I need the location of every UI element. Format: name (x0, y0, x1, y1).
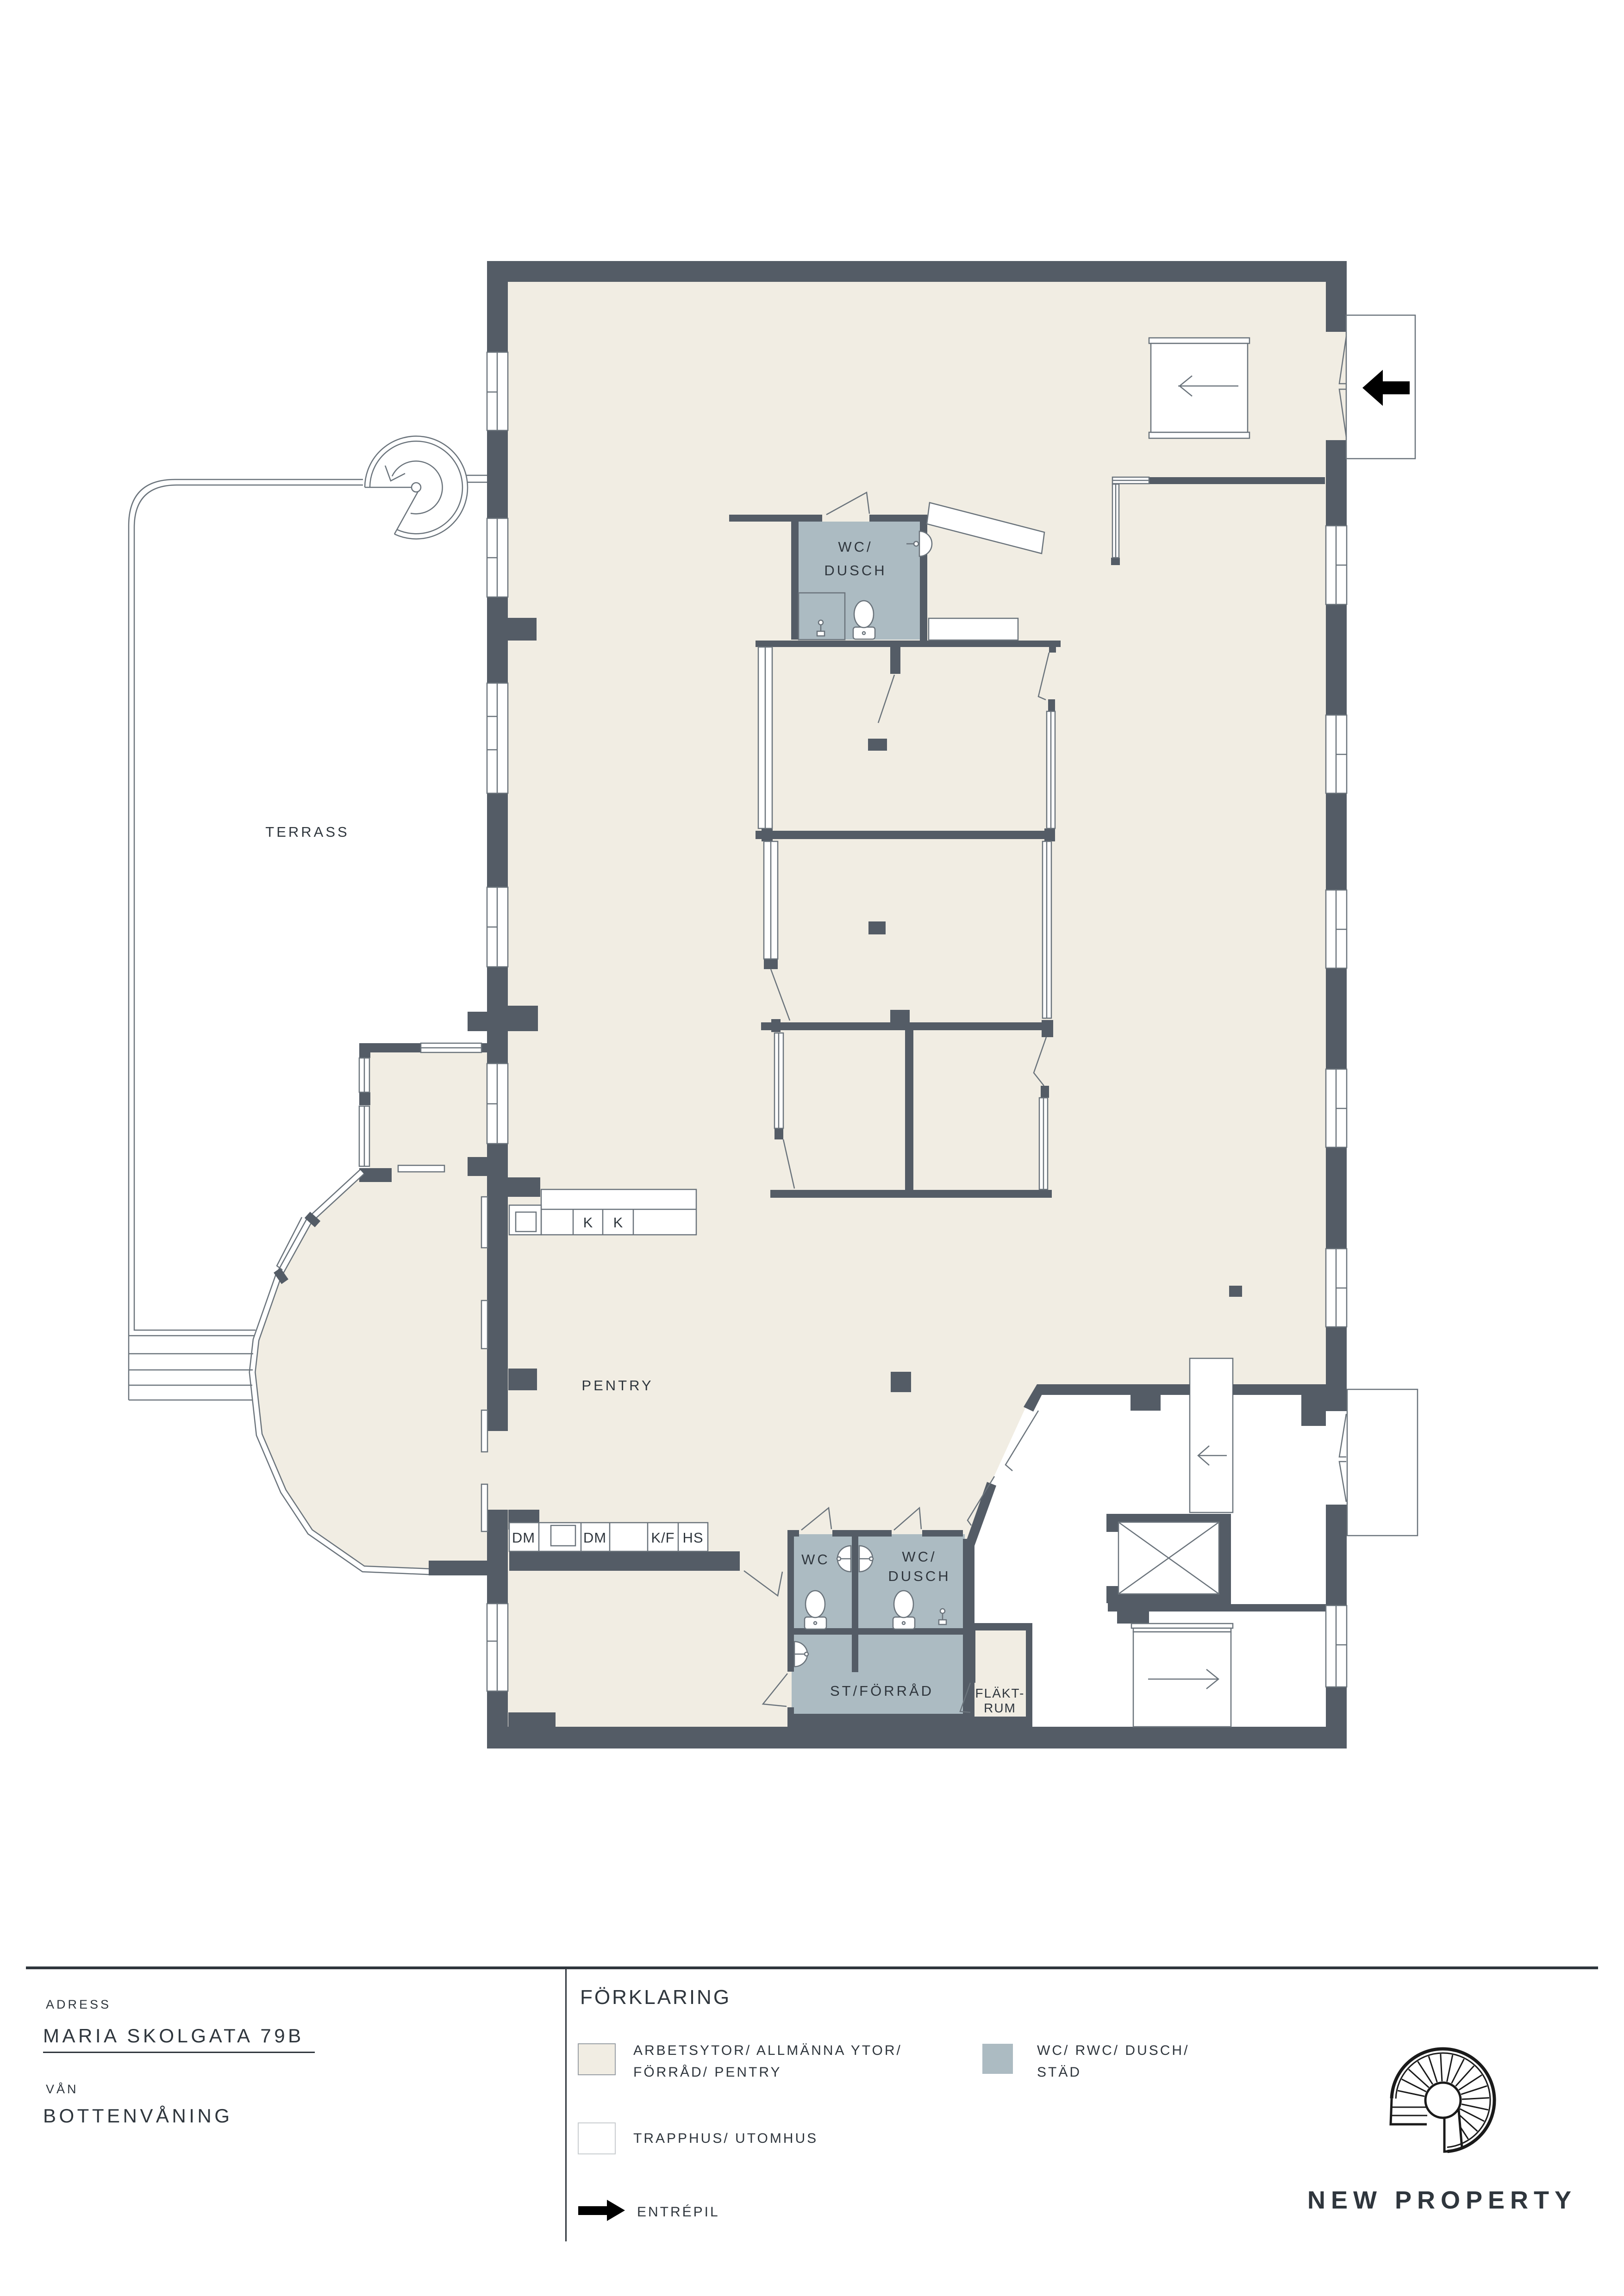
svg-text:DM: DM (583, 1530, 606, 1546)
svg-text:FÖRRÅD/ PENTRY: FÖRRÅD/ PENTRY (633, 2065, 781, 2080)
svg-text:STÄD: STÄD (1037, 2065, 1081, 2080)
svg-text:K: K (613, 1214, 623, 1231)
svg-text:FÖRKLARING: FÖRKLARING (580, 1986, 731, 2009)
svg-text:DUSCH: DUSCH (888, 1568, 950, 1584)
svg-text:DUSCH: DUSCH (824, 562, 887, 579)
svg-text:ADRESS: ADRESS (46, 1997, 111, 2011)
svg-text:DM: DM (512, 1530, 535, 1546)
svg-text:FLÄKT-: FLÄKT- (975, 1686, 1025, 1700)
svg-text:RUM: RUM (984, 1701, 1016, 1715)
svg-text:VÅN: VÅN (46, 2082, 79, 2096)
svg-text:WC/ RWC/ DUSCH/: WC/ RWC/ DUSCH/ (1037, 2043, 1189, 2058)
svg-text:K: K (583, 1214, 593, 1231)
svg-text:WC/: WC/ (902, 1549, 937, 1565)
svg-text:NEW PROPERTY: NEW PROPERTY (1307, 2186, 1577, 2214)
svg-text:TERRASS: TERRASS (265, 824, 349, 840)
svg-text:PENTRY: PENTRY (581, 1377, 653, 1394)
svg-text:HS: HS (682, 1530, 703, 1546)
svg-text:MARIA SKOLGATA 79B: MARIA SKOLGATA 79B (43, 2025, 304, 2047)
svg-text:K/F: K/F (651, 1530, 675, 1546)
svg-text:TRAPPHUS/ UTOMHUS: TRAPPHUS/ UTOMHUS (633, 2131, 818, 2146)
svg-text:ENTRÉPIL: ENTRÉPIL (637, 2204, 720, 2220)
svg-text:BOTTENVÅNING: BOTTENVÅNING (43, 2105, 232, 2127)
svg-text:WC: WC (801, 1551, 830, 1568)
svg-text:ST/FÖRRÅD: ST/FÖRRÅD (830, 1683, 934, 1699)
svg-text:WC/: WC/ (838, 539, 873, 555)
svg-text:ARBETSYTOR/ ALLMÄNNA YTOR/: ARBETSYTOR/ ALLMÄNNA YTOR/ (633, 2043, 902, 2058)
